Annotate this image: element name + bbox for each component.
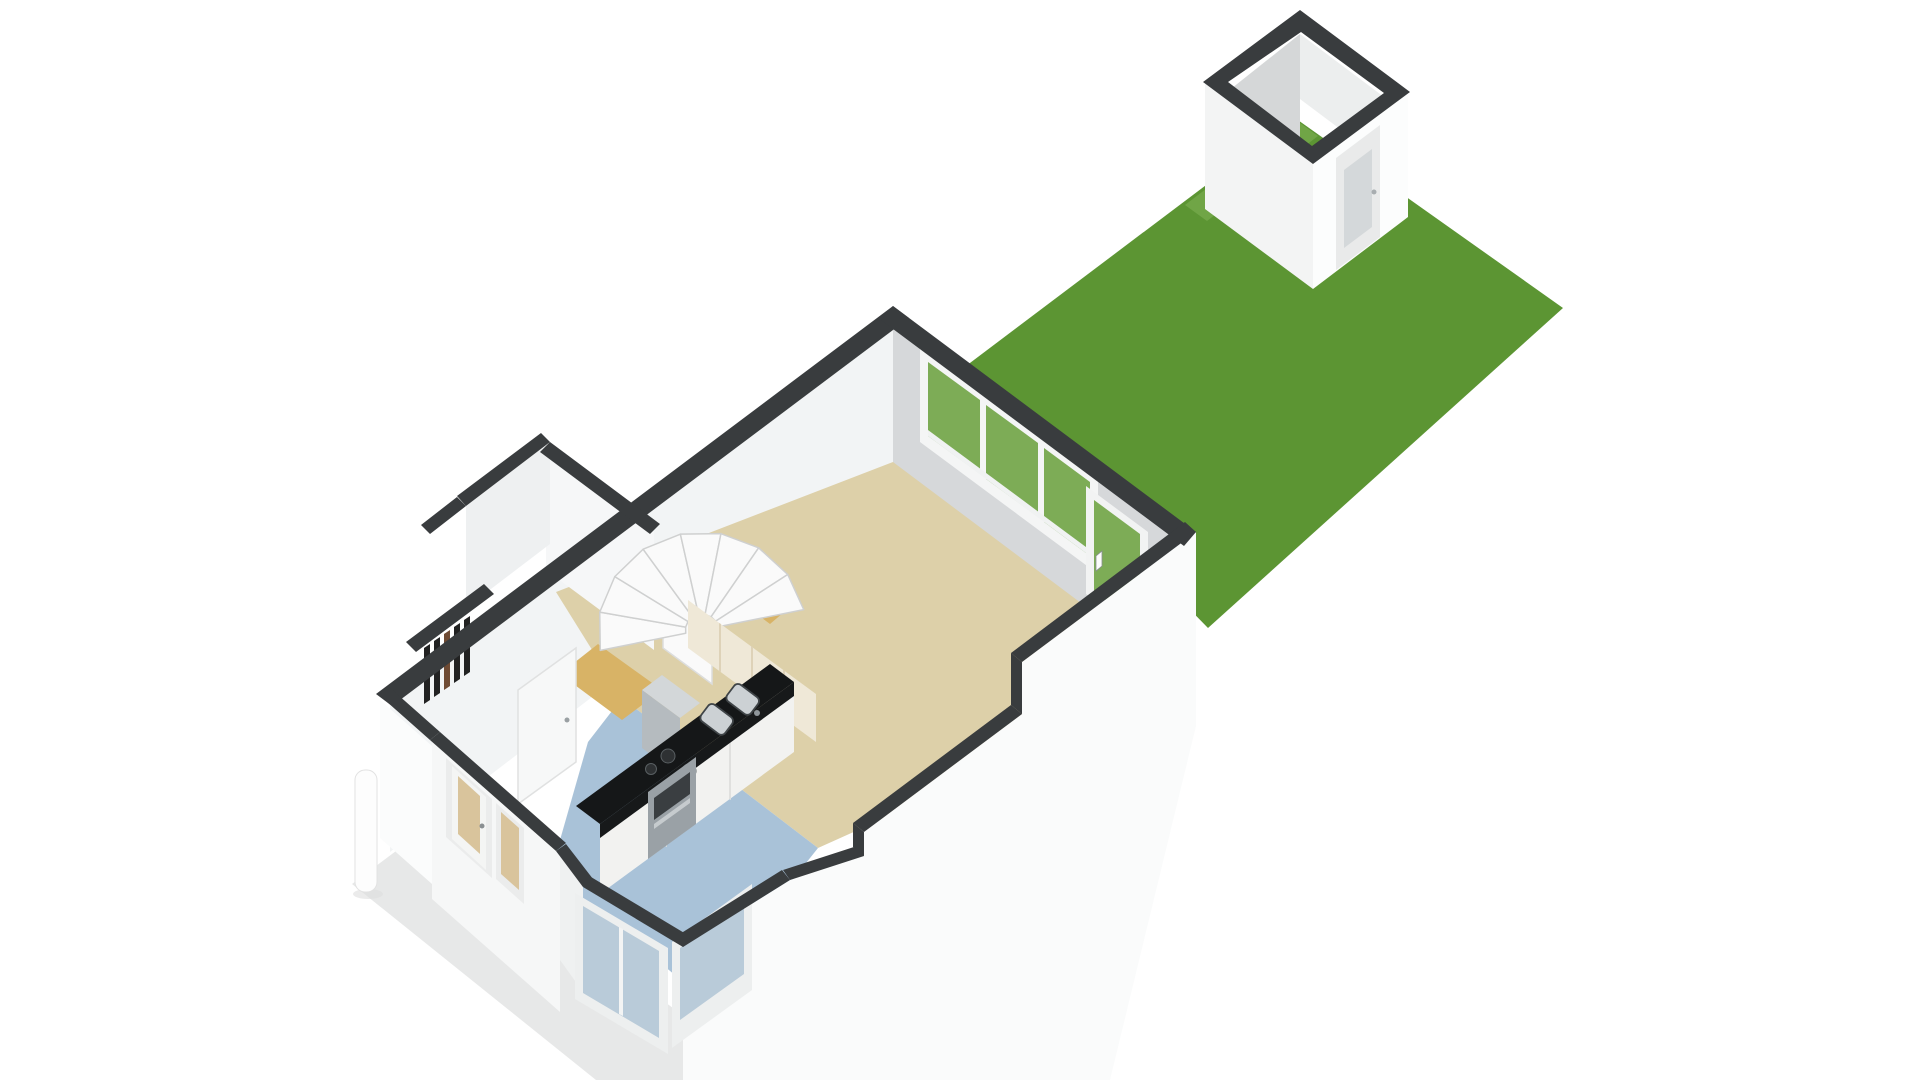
floorplan-3d-scene: [0, 0, 1919, 1080]
floorplan-3d-render-stage: [0, 0, 1919, 1080]
cooktop-burner-2: [646, 764, 657, 775]
cap-closet-wall-b: [421, 497, 466, 534]
cooktop-burner-1: [661, 749, 675, 763]
hall-door-handle: [565, 718, 570, 723]
cap-se-step-1: [1011, 653, 1022, 714]
street-bollard: [355, 770, 377, 892]
shed-door-handle: [1372, 190, 1377, 195]
front-door-handle: [480, 824, 485, 829]
cabinet-seam-1: [719, 623, 721, 672]
sink-faucet: [754, 710, 760, 716]
counter-seam-1: [729, 741, 731, 800]
bay-front-window-mullion: [619, 927, 623, 1016]
